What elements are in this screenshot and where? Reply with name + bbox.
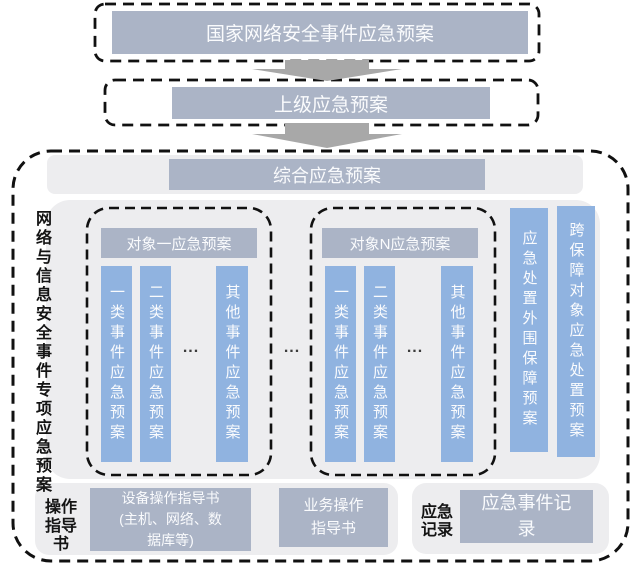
comprehensive-plan-box: 综合应急预案 (169, 159, 485, 190)
national-plan-box: 国家网络安全事件应急预案 (112, 11, 528, 54)
group2-column-other: 其他事件应急预案 (441, 266, 473, 462)
superior-plan-box: 上级应急预案 (172, 87, 490, 119)
cross-object-response-plan-bar: 跨保障对象应急处置预案 (557, 206, 595, 457)
emergency-record-label: 应急记录 (418, 503, 456, 541)
object-group-1-header: 对象一应急预案 (101, 228, 257, 258)
group2-column-2: 二类事件应急预案 (364, 266, 395, 462)
group2-column-1: 一类事件应急预案 (325, 266, 356, 462)
perimeter-support-plan-bar: 应急处置外围保障预案 (510, 208, 548, 452)
group1-column-1: 一类事件应急预案 (101, 266, 132, 462)
object-group-2-header: 对象N应急预案 (322, 228, 478, 258)
emergency-plan-diagram: 国家网络安全事件应急预案 上级应急预案 综合应急预案 网络与信息安全事件专项应急… (0, 0, 641, 573)
flow-arrow-down-1 (252, 60, 402, 81)
group1-column-other: 其他事件应急预案 (216, 266, 248, 462)
group2-ellipsis: ... (402, 338, 428, 358)
group1-ellipsis: ... (178, 338, 204, 358)
groups-ellipsis: ... (279, 338, 305, 358)
device-guide-box: 设备操作指导书 (主机、网络、数 据库等) (90, 488, 251, 551)
business-guide-box: 业务操作 指导书 (279, 488, 388, 547)
emergency-record-box: 应急事件记 录 (460, 490, 593, 543)
operation-guide-label: 操作指导书 (42, 498, 80, 556)
group1-column-2: 二类事件应急预案 (140, 266, 171, 462)
special-section-label: 网络与信息安全事件专项应急预案 (28, 216, 54, 488)
flow-arrow-down-2 (252, 123, 402, 148)
